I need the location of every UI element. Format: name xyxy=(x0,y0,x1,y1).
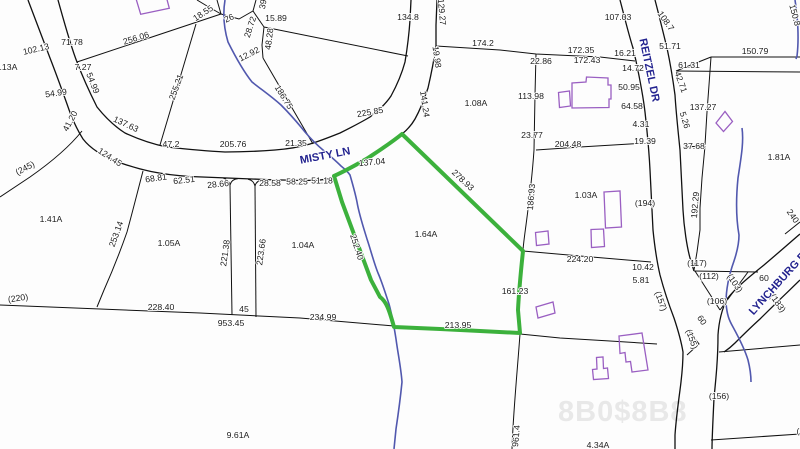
svg-text:22.86: 22.86 xyxy=(530,56,552,66)
svg-text:205.76: 205.76 xyxy=(220,139,247,149)
svg-text:150.79: 150.79 xyxy=(742,46,769,56)
svg-text:28.58: 28.58 xyxy=(259,178,281,188)
svg-text:961.4: 961.4 xyxy=(510,425,522,448)
svg-text:234.99: 234.99 xyxy=(310,312,337,322)
svg-text:15.89: 15.89 xyxy=(265,13,287,23)
svg-text:172.43: 172.43 xyxy=(574,55,601,65)
svg-text:9.61A: 9.61A xyxy=(227,430,250,440)
svg-text:37.68: 37.68 xyxy=(683,141,705,151)
svg-text:58.25: 58.25 xyxy=(286,177,308,187)
svg-text:45: 45 xyxy=(239,304,249,314)
svg-text:61.31: 61.31 xyxy=(678,60,700,70)
svg-text:1.81A: 1.81A xyxy=(768,152,791,162)
svg-text:10.42: 10.42 xyxy=(632,262,654,272)
svg-text:8B0$8B8: 8B0$8B8 xyxy=(558,396,688,428)
svg-text:174.2: 174.2 xyxy=(472,38,494,48)
svg-text:51.18: 51.18 xyxy=(311,176,333,186)
svg-text:60: 60 xyxy=(759,273,769,283)
svg-text:1.04A: 1.04A xyxy=(292,240,315,250)
svg-text:21.35: 21.35 xyxy=(285,138,307,148)
svg-text:953.45: 953.45 xyxy=(218,318,245,328)
svg-text:5.81: 5.81 xyxy=(633,275,650,285)
svg-text:224.20: 224.20 xyxy=(567,254,594,264)
svg-text:1.64A: 1.64A xyxy=(415,229,438,239)
svg-text:(: ( xyxy=(797,426,800,436)
svg-text:(117): (117) xyxy=(687,258,707,268)
svg-text:204.48: 204.48 xyxy=(555,139,582,149)
svg-text:14.72: 14.72 xyxy=(622,63,644,73)
svg-text:(106): (106) xyxy=(707,296,727,306)
svg-text:1.05A: 1.05A xyxy=(158,238,181,248)
svg-text:0.13A: 0.13A xyxy=(0,62,18,72)
svg-text:16.21: 16.21 xyxy=(614,48,636,58)
svg-text:161.23: 161.23 xyxy=(502,286,529,296)
svg-text:47.2: 47.2 xyxy=(163,139,180,149)
svg-text:23.77: 23.77 xyxy=(521,130,543,140)
svg-text:1.08A: 1.08A xyxy=(465,98,488,108)
svg-text:4.34A: 4.34A xyxy=(587,440,610,449)
svg-text:71.78: 71.78 xyxy=(61,37,83,47)
svg-text:107.03: 107.03 xyxy=(605,12,632,22)
svg-text:(156): (156) xyxy=(709,391,729,401)
svg-text:50.95: 50.95 xyxy=(618,82,640,92)
svg-text:1.03A: 1.03A xyxy=(575,190,598,200)
svg-text:228.40: 228.40 xyxy=(148,302,175,312)
svg-text:1.41A: 1.41A xyxy=(40,214,63,224)
svg-text:4.31: 4.31 xyxy=(633,119,650,129)
svg-text:19.39: 19.39 xyxy=(634,136,656,146)
svg-text:137.27: 137.27 xyxy=(690,102,717,112)
svg-text:134.8: 134.8 xyxy=(397,12,419,22)
svg-text:(194): (194) xyxy=(635,198,655,208)
svg-text:172.35: 172.35 xyxy=(568,45,595,55)
svg-text:213.95: 213.95 xyxy=(445,320,472,330)
svg-text:7.27: 7.27 xyxy=(75,62,92,72)
svg-text:113.98: 113.98 xyxy=(518,91,544,101)
svg-text:(112): (112) xyxy=(699,271,719,281)
svg-text:51.71: 51.71 xyxy=(659,41,681,51)
svg-text:64.58: 64.58 xyxy=(621,101,643,111)
